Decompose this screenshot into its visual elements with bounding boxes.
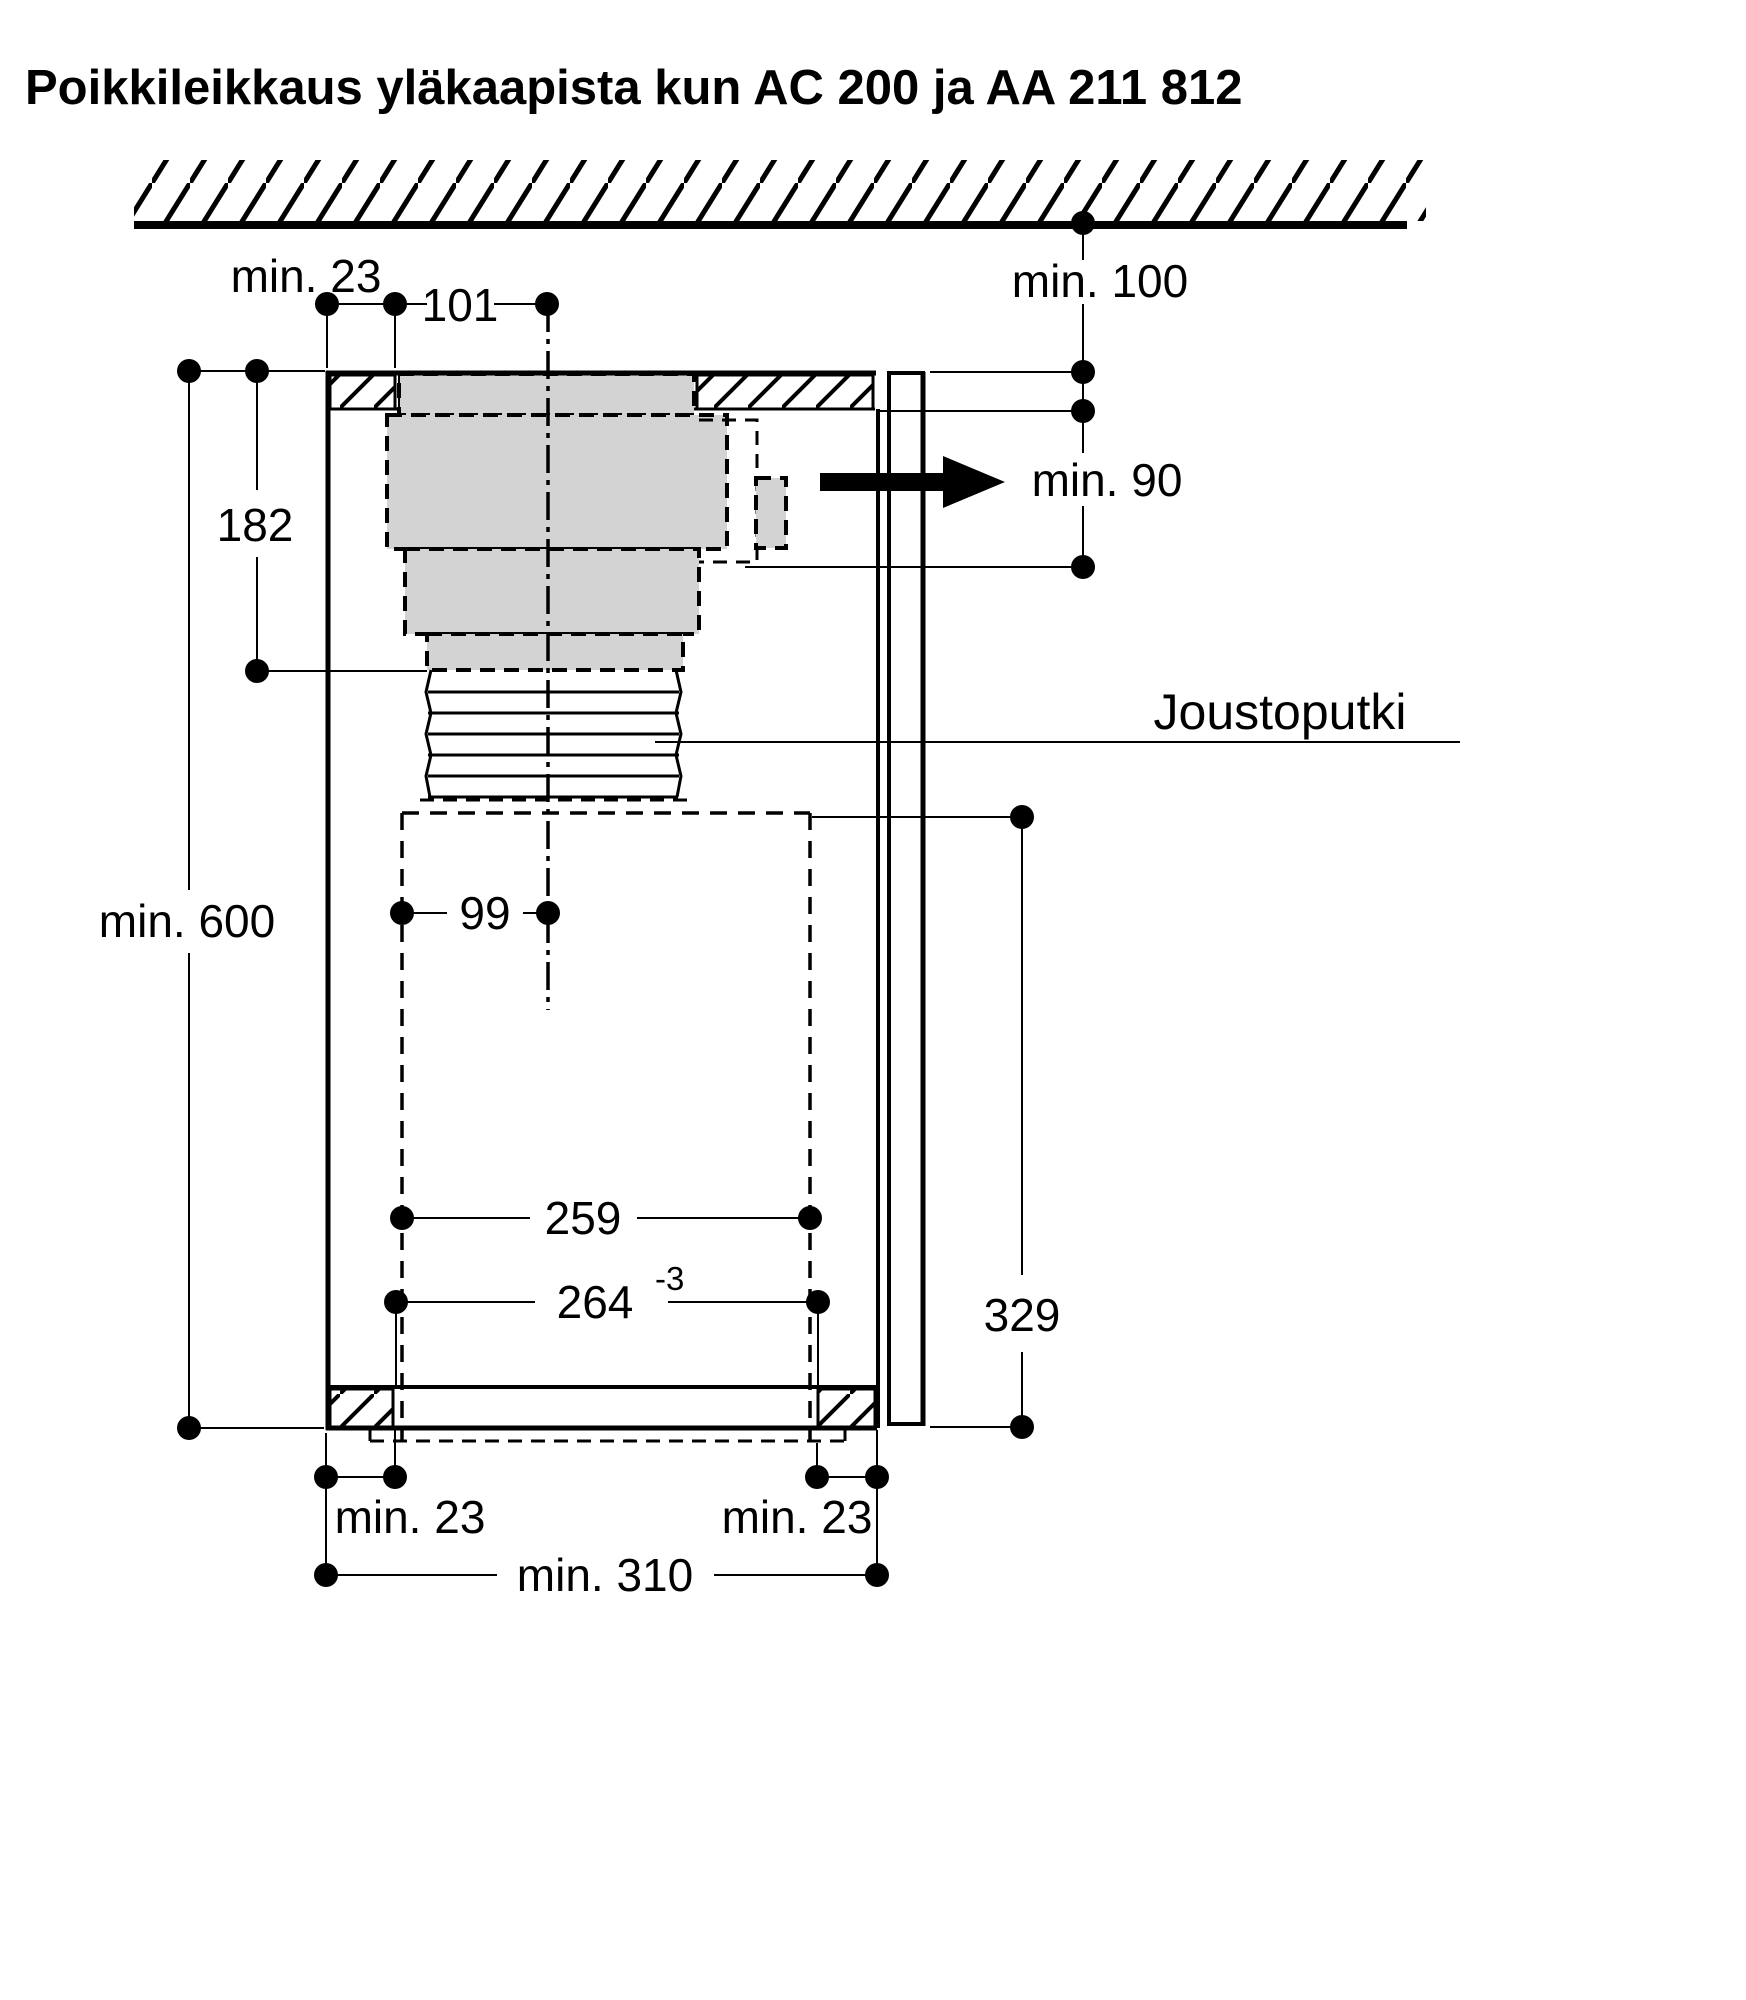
bottom-right-gap-label: min. 23: [722, 1491, 873, 1543]
dimension-lines: [189, 223, 1460, 1575]
cutout-tolerance-label: -3: [655, 1260, 684, 1297]
duct-height-label: 182: [217, 499, 294, 551]
top-panel-left-block: [330, 375, 395, 409]
airflow-arrow: [820, 456, 1005, 508]
cabinet-cross-section-diagram: Poikkileikkaus yläkaapista kun AC 200 ja…: [0, 0, 1746, 2000]
duct-section-mid: [405, 549, 699, 634]
ceiling-clearance-label: min. 100: [1012, 255, 1188, 307]
flexible-tube-drawing: [420, 670, 688, 800]
cutout-width-label: 264: [557, 1276, 634, 1328]
bottom-panel: [326, 1387, 877, 1428]
recess-centre-label: 99: [459, 887, 510, 939]
recess-height-label: 329: [984, 1289, 1061, 1341]
cabinet-height-label: min. 600: [99, 895, 275, 947]
front-frame-lines: [878, 372, 925, 1428]
duct-section-main: [387, 415, 727, 549]
top-left-gap-label: min. 23: [231, 250, 382, 302]
recess-width-label: 259: [545, 1192, 622, 1244]
dimension-labels: min. 23 101 min. 100 min. 90 182 min. 60…: [99, 250, 1407, 1601]
ceiling-hatch: [134, 160, 1426, 225]
page-title: Poikkileikkaus yläkaapista kun AC 200 ja…: [25, 61, 1243, 115]
top-panel-right-block: [697, 375, 873, 409]
duct-assembly: [387, 374, 786, 670]
outlet-spigot: [756, 478, 786, 548]
diagram-page: Poikkileikkaus yläkaapista kun AC 200 ja…: [0, 0, 1746, 2000]
duct-section-collar: [427, 634, 683, 670]
flex-tube-callout: Joustoputki: [1154, 684, 1407, 740]
bottom-width-label: min. 310: [517, 1549, 693, 1601]
bottom-left-gap-label: min. 23: [335, 1491, 486, 1543]
duct-offset-label: 101: [422, 279, 499, 331]
outlet-height-label: min. 90: [1032, 454, 1183, 506]
